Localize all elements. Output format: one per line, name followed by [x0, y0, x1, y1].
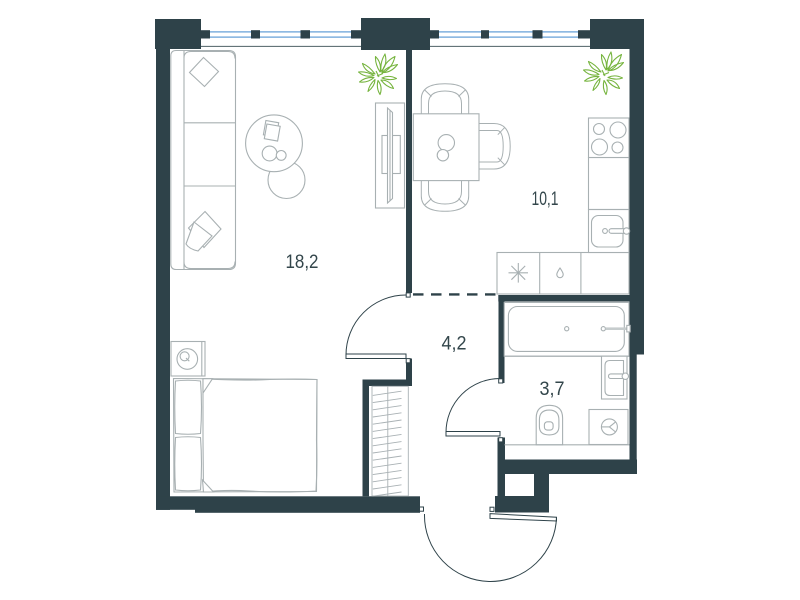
- svg-text:4,2: 4,2: [442, 334, 467, 355]
- svg-text:3,7: 3,7: [540, 379, 565, 400]
- svg-text:18,2: 18,2: [286, 252, 319, 273]
- svg-text:10,1: 10,1: [532, 189, 559, 210]
